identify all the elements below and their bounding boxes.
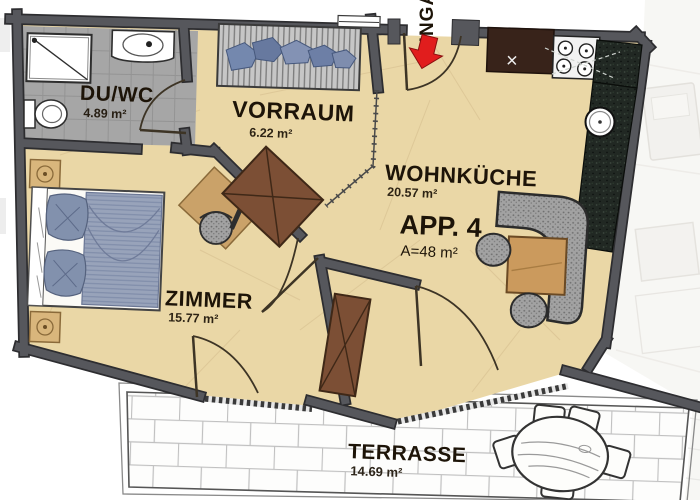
hall-wardrobe [217, 24, 361, 90]
kitchen-counter-corner [593, 40, 642, 88]
washbasin [112, 30, 175, 63]
room-label-vorraum: VORRAUM [232, 96, 355, 127]
entrance-pier-right [452, 20, 480, 46]
shower [26, 33, 91, 83]
nightstand [30, 159, 61, 188]
fridge-cabinet [487, 27, 554, 73]
room-area-zimmer: 15.77 m² [168, 310, 219, 326]
room-label-duwc: DU/WC [80, 82, 154, 108]
double-bed [28, 187, 165, 310]
nightstand [29, 311, 60, 342]
stove [552, 36, 599, 80]
room-label-zimmer: ZIMMER [165, 286, 254, 314]
apartment-area-label: A=48 m² [400, 242, 458, 261]
window [338, 15, 380, 27]
stool [510, 293, 547, 329]
entrance-pier-left [388, 19, 400, 44]
room-area-wohnkueche: 20.57 m² [387, 185, 438, 201]
dining-table [507, 236, 567, 294]
toilet [24, 100, 67, 128]
apartment-id-label: APP. 4 [399, 209, 482, 243]
room-area-terrasse: 14.69 m² [350, 463, 403, 480]
room-area-vorraum: 6.22 m² [249, 125, 293, 141]
floorplan-svg: EINGANG DU/WC 4.89 m² VORRAUM 6.22 m² WO… [0, 0, 700, 500]
floorplan-image: EINGANG DU/WC 4.89 m² VORRAUM 6.22 m² WO… [0, 0, 700, 500]
desk-chair [200, 212, 232, 244]
bed-blanket [82, 192, 162, 307]
kitchen-sink [586, 108, 615, 137]
room-area-duwc: 4.89 m² [83, 106, 127, 121]
